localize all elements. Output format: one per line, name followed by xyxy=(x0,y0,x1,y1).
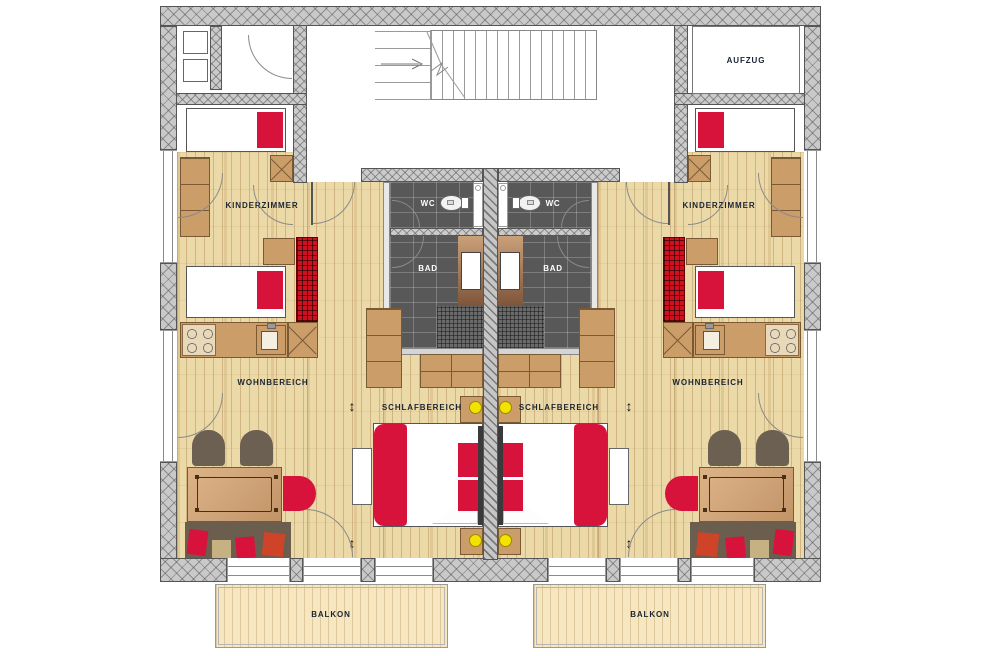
window-bottom-3 xyxy=(375,558,433,582)
right-wohnbereich-label: WOHNBEREICH xyxy=(658,377,758,388)
left-child-bed-1-pillow xyxy=(257,112,283,148)
right-table-dot-2 xyxy=(703,475,707,479)
left-entry-wall xyxy=(361,168,483,182)
window-bottom-5 xyxy=(620,558,678,582)
left-wc-door-knob xyxy=(475,185,481,191)
left-dresser xyxy=(420,354,483,388)
window-bottom-2 xyxy=(303,558,361,582)
right-nightstand-child xyxy=(686,238,718,265)
right-bad-label: BAD xyxy=(529,263,577,273)
left-bench-pillow-2 xyxy=(212,540,231,558)
right-dresser xyxy=(498,354,561,388)
floor-plan: ↕↕KINDERZIMMERWOHNBEREICHSCHLAFBEREICHWC… xyxy=(0,0,985,656)
left-dining-chair-1 xyxy=(192,430,225,466)
window-bottom-4 xyxy=(548,558,606,582)
right-entry-wall xyxy=(498,168,620,182)
outer-wall-bottom-center xyxy=(433,558,548,582)
right-shelf-column xyxy=(579,308,615,388)
right-bench-pillow-3 xyxy=(725,536,746,559)
outer-wall-bottom-1 xyxy=(160,558,227,582)
right-cooktop xyxy=(765,324,799,356)
left-toilet-button xyxy=(447,200,454,205)
left-table-dot-4 xyxy=(274,508,278,512)
left-faucet xyxy=(267,323,276,329)
left-child-bed-2-pillow xyxy=(257,271,283,309)
party-wall xyxy=(483,168,498,560)
window-right-1 xyxy=(804,150,821,263)
left-shower-door xyxy=(461,252,481,290)
right-toilet-tank xyxy=(512,197,520,209)
window-right-2 xyxy=(804,330,821,462)
right-table-dot-3 xyxy=(782,508,786,512)
left-tiled-stove xyxy=(296,237,318,322)
right-wc-door-knob xyxy=(500,185,506,191)
window-bottom-1 xyxy=(227,558,290,582)
right-balkon-label: BALKON xyxy=(600,608,700,620)
right-bed-pillow-1 xyxy=(503,443,523,477)
left-shaft-box-2 xyxy=(288,322,318,358)
left-shelf-column xyxy=(366,308,402,388)
window-left-2 xyxy=(160,330,177,462)
outer-wall-bottom-2 xyxy=(290,558,303,582)
right-dining-chair-2 xyxy=(708,430,741,466)
right-bench-pillow-4 xyxy=(696,532,719,557)
right-child-bed-2-pillow xyxy=(698,271,724,309)
left-bed-pillow-1 xyxy=(458,443,478,477)
right-faucet xyxy=(705,323,714,329)
aufzug-label: AUFZUG xyxy=(696,54,796,66)
left-slide-arrow-1: ↕ xyxy=(344,394,360,418)
left-bed-cover xyxy=(374,424,407,526)
left-wc-label: WC xyxy=(416,198,440,208)
outer-wall-left-1 xyxy=(160,26,177,150)
right-dining-chair-1 xyxy=(756,430,789,466)
right-slide-arrow-1: ↕ xyxy=(621,394,637,418)
outer-wall-bottom-6 xyxy=(754,558,821,582)
right-schlafbereich-label: SCHLAFBEREICH xyxy=(509,402,609,413)
outer-wall-bottom-4 xyxy=(606,558,620,582)
window-bottom-6 xyxy=(691,558,754,582)
right-table-inner-border xyxy=(709,477,784,512)
right-bench-pillow-2 xyxy=(750,540,769,558)
right-wc-bad-divider-wall xyxy=(498,228,591,236)
left-nightstand-child xyxy=(263,238,295,265)
left-bench-pillow-1 xyxy=(187,529,209,556)
left-table-dot-3 xyxy=(195,508,199,512)
right-toilet-button xyxy=(527,200,534,205)
storage-wall-stub xyxy=(210,26,222,90)
right-bed-pillow-2 xyxy=(503,480,523,511)
right-child-bed-1-pillow xyxy=(698,112,724,148)
left-wc-bad-divider-wall xyxy=(390,228,483,236)
left-shower-floor-grid xyxy=(437,306,483,348)
left-tv-sideboard xyxy=(352,448,372,505)
outer-wall-top xyxy=(160,6,821,26)
right-bedside-lamp-2 xyxy=(499,534,512,547)
left-bedside-lamp-2 xyxy=(469,534,482,547)
right-tiled-stove xyxy=(663,237,685,322)
window-left-1 xyxy=(160,150,177,263)
outer-wall-left-2 xyxy=(160,263,177,330)
right-tv-sideboard xyxy=(609,448,629,505)
right-shaft-box-1 xyxy=(688,155,711,182)
left-table-dot-2 xyxy=(274,475,278,479)
left-bench-pillow-4 xyxy=(262,532,285,557)
left-armchair xyxy=(283,476,316,511)
right-armchair xyxy=(665,476,698,511)
left-balkon-label: BALKON xyxy=(281,608,381,620)
right-shower-floor-grid xyxy=(498,306,544,348)
left-wohnbereich-label: WOHNBEREICH xyxy=(223,377,323,388)
left-table-dot-1 xyxy=(195,475,199,479)
left-niche-top-wall xyxy=(160,93,307,105)
right-bed-cover xyxy=(574,424,607,526)
outer-wall-right-2 xyxy=(804,263,821,330)
storage-shelf-1 xyxy=(183,31,208,54)
right-table-dot-1 xyxy=(782,475,786,479)
left-cooktop xyxy=(182,324,216,356)
storage-door-swing xyxy=(248,35,292,79)
storage-shelf-2 xyxy=(183,59,208,82)
left-bad-label: BAD xyxy=(404,263,452,273)
right-shaft-box-2 xyxy=(663,322,693,358)
left-shaft-box-1 xyxy=(270,155,293,182)
left-bed-pillow-2 xyxy=(458,480,478,511)
outer-wall-bottom-5 xyxy=(678,558,691,582)
right-niche-top-wall xyxy=(674,93,821,105)
left-table-inner-border xyxy=(197,477,272,512)
left-sink-basin xyxy=(261,331,278,350)
left-toilet-tank xyxy=(461,197,469,209)
outer-wall-bottom-3 xyxy=(361,558,375,582)
left-schlafbereich-label: SCHLAFBEREICH xyxy=(372,402,472,413)
left-dining-chair-2 xyxy=(240,430,273,466)
left-bench-pillow-3 xyxy=(235,536,256,559)
stair-direction-arrow xyxy=(375,30,597,100)
right-sink-basin xyxy=(703,331,720,350)
right-wc-label: WC xyxy=(541,198,565,208)
right-bench-pillow-1 xyxy=(773,529,795,556)
right-shower-door xyxy=(500,252,520,290)
right-bed-headboard xyxy=(498,426,503,525)
right-table-dot-4 xyxy=(703,508,707,512)
outer-wall-right-1 xyxy=(804,26,821,150)
